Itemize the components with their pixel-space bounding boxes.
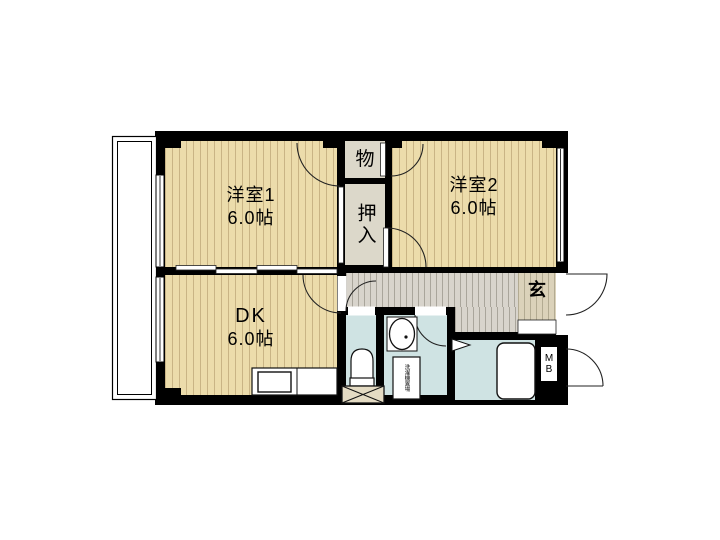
room-western1-name: 洋室1	[226, 184, 275, 207]
window-dk	[156, 277, 164, 362]
dk-door-opening	[338, 276, 347, 311]
toilet-icon	[350, 349, 374, 386]
washroom-door-opening	[415, 307, 446, 316]
door-arc-storage	[391, 144, 423, 176]
entrance-step	[518, 320, 556, 334]
room-western1-label: 洋室1 6.0帖	[165, 183, 337, 231]
entrance-label: 玄	[518, 276, 556, 304]
floor-plan: 洋室1 6.0帖 洋室2 6.0帖 DK 6.0帖 物 押入 玄 MB 洗濯機置…	[0, 0, 720, 540]
door-arc-west1-corner	[297, 143, 340, 186]
oshiire-closet-label: 押入	[345, 184, 385, 265]
room-dk-name: DK	[235, 305, 267, 328]
room-dk-area: 6.0帖	[227, 328, 274, 351]
balcony	[113, 137, 157, 400]
window-west1	[156, 175, 164, 267]
window-west2	[557, 148, 564, 262]
meter-box-label: MB	[541, 347, 557, 381]
room-western2-label: 洋室2 6.0帖	[392, 173, 556, 221]
door-arc-washroom	[415, 315, 446, 346]
laundry-space-label: 洗濯機置場	[393, 358, 420, 398]
door-arc-meter-box	[566, 349, 603, 386]
sliding-door-west1-dk	[176, 266, 337, 274]
washbasin-icon	[387, 317, 417, 351]
kitchen-counter	[252, 368, 337, 395]
oshiire-door-face	[339, 187, 344, 263]
pipe-space-hatch	[342, 386, 384, 403]
plan-linework	[0, 0, 720, 540]
folding-door-icon	[452, 339, 470, 351]
room-western2-area: 6.0帖	[450, 197, 497, 220]
storage-closet-label: 物	[345, 141, 385, 178]
room-western2-name: 洋室2	[449, 174, 498, 197]
door-arc-entrance	[566, 274, 607, 315]
room-western1-area: 6.0帖	[227, 207, 274, 230]
door-arc-west2-entry	[387, 228, 426, 267]
toilet-door-opening	[348, 307, 375, 316]
bathtub-icon	[497, 343, 535, 399]
room-dk-label: DK 6.0帖	[165, 303, 337, 353]
